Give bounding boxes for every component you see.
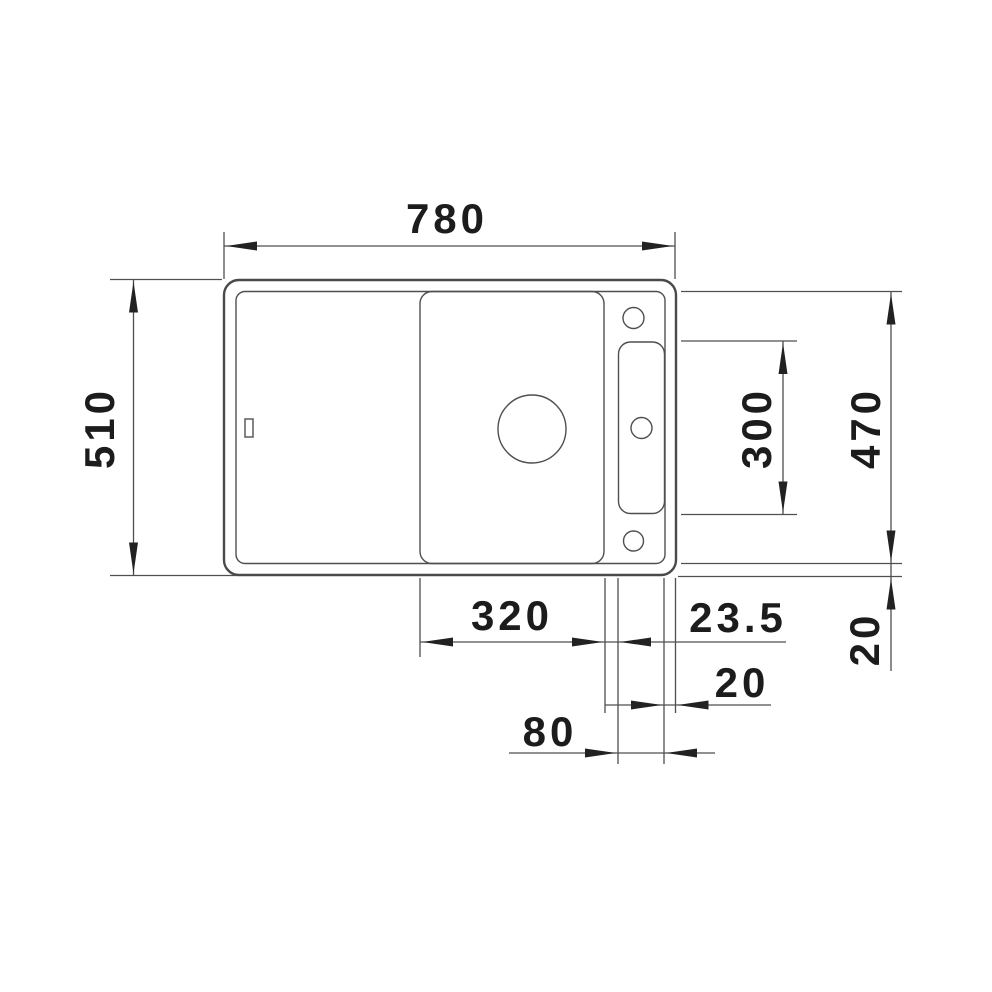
arrowhead-bottom	[129, 543, 138, 574]
arrowhead-bottom	[779, 482, 788, 513]
arrowhead-left	[422, 638, 453, 647]
arrowhead-left	[585, 749, 616, 758]
drawing-canvas: 780 510 470 300 20	[0, 0, 992, 992]
dim-label-780: 780	[406, 195, 488, 242]
dim-label-20-vertical: 20	[841, 612, 888, 667]
arrowhead-left	[226, 242, 257, 251]
arrowhead-right	[642, 242, 673, 251]
tap-ledge	[619, 308, 665, 552]
tap-slot	[619, 342, 665, 514]
dim-slot-length: 300	[681, 341, 797, 515]
dim-label-320: 320	[471, 592, 553, 639]
tap-hole-bottom	[624, 531, 644, 551]
dim-label-80: 80	[523, 708, 578, 755]
arrowhead-left	[631, 701, 662, 710]
dim-label-20-horizontal: 20	[715, 659, 770, 706]
arrowhead-top	[129, 282, 138, 313]
board-handle-notch	[245, 419, 253, 437]
sink-plan	[224, 280, 676, 575]
arrowhead-right	[678, 701, 709, 710]
dim-label-300: 300	[733, 387, 780, 469]
dim-label-510: 510	[76, 387, 123, 469]
arrowhead-top	[779, 343, 788, 374]
arrowhead-bottom	[887, 531, 896, 562]
sink-inner-rim	[236, 292, 665, 564]
arrowhead-gap	[620, 638, 651, 647]
arrowhead-top	[887, 294, 896, 325]
dim-label-470: 470	[842, 387, 889, 469]
dim-slot-to-edge: 20	[605, 659, 771, 710]
tap-hole-middle	[631, 418, 652, 439]
drain-hole	[498, 395, 566, 463]
arrowhead-up	[887, 579, 896, 610]
cutting-board	[420, 292, 604, 564]
arrowhead-right	[572, 638, 603, 647]
sink-outer-edge	[224, 280, 676, 575]
dim-overall-width: 780	[224, 195, 675, 279]
dim-board-width-and-gap: 320 23.5	[420, 592, 787, 647]
dim-slot-width: 80	[509, 708, 715, 758]
dim-label-23-5: 23.5	[689, 594, 787, 641]
arrowhead-right	[666, 749, 697, 758]
dim-overall-depth: 510	[76, 280, 237, 576]
tap-hole-top	[623, 308, 644, 329]
sink-dimension-drawing: 780 510 470 300 20	[0, 0, 992, 992]
